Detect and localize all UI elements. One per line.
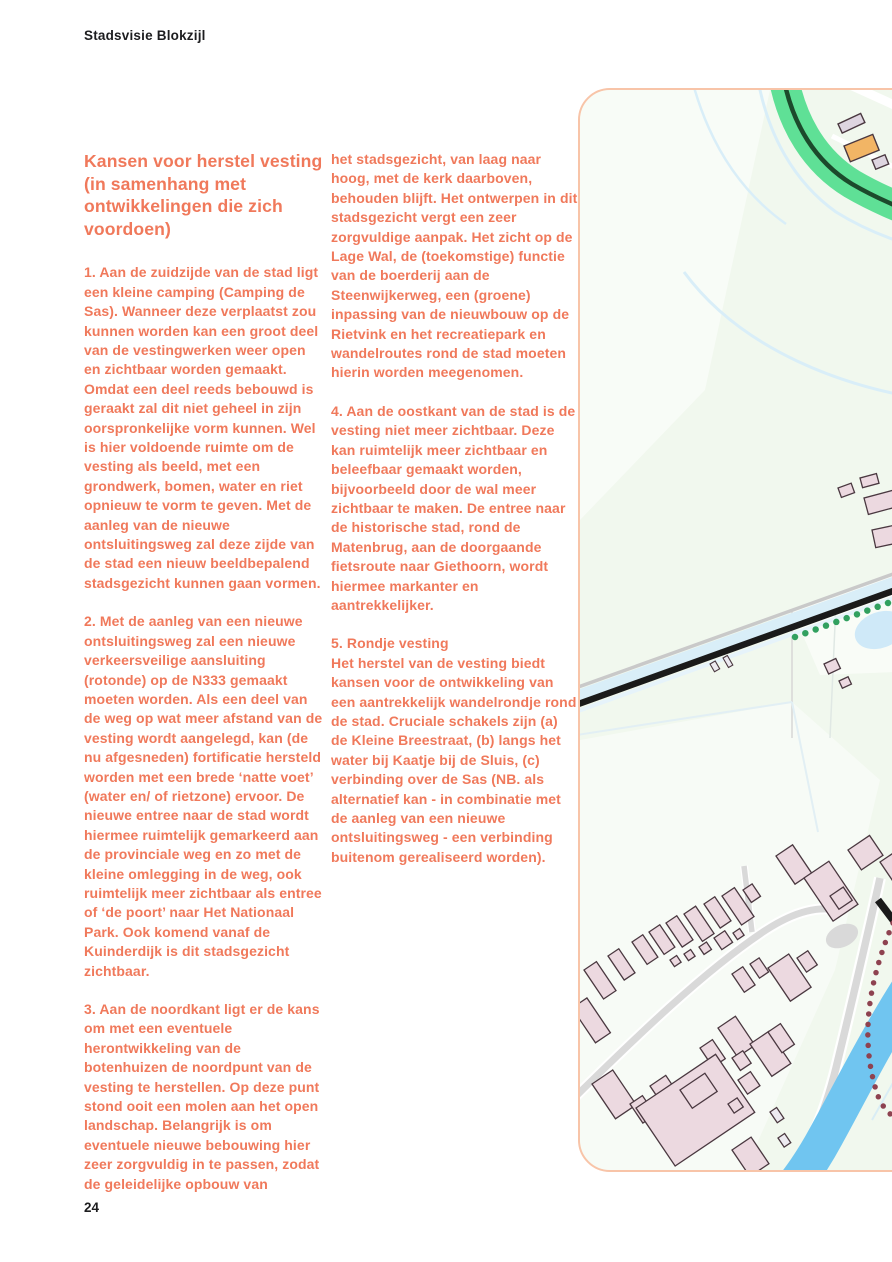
paragraph-2: 2. Met de aanleg van een nieuwe ontsluit… (84, 612, 325, 981)
text-column-middle: het stadsgezicht, van laag naar hoog, me… (331, 150, 578, 886)
map-figure (578, 88, 892, 1172)
map-n333-highway (783, 90, 892, 220)
page-header: Stadsvisie Blokzijl (84, 28, 206, 43)
page-number: 24 (84, 1200, 99, 1215)
map-bridge-road (878, 900, 892, 945)
section-heading: Kansen voor herstel vesting (in samenhan… (84, 150, 325, 240)
paragraph-5: 5. Rondje vesting Het herstel van de ves… (331, 634, 578, 867)
paragraph-4: 4. Aan de oostkant van de stad is de ves… (331, 402, 578, 615)
paragraph-1: 1. Aan de zuidzijde van de stad ligt een… (84, 263, 325, 593)
text-column-left: Kansen voor herstel vesting (in samenhan… (84, 150, 325, 1213)
paragraph-3: 3. Aan de noordkant ligt er de kans om m… (84, 1000, 325, 1194)
paragraph-3-continued: het stadsgezicht, van laag naar hoog, me… (331, 150, 578, 383)
